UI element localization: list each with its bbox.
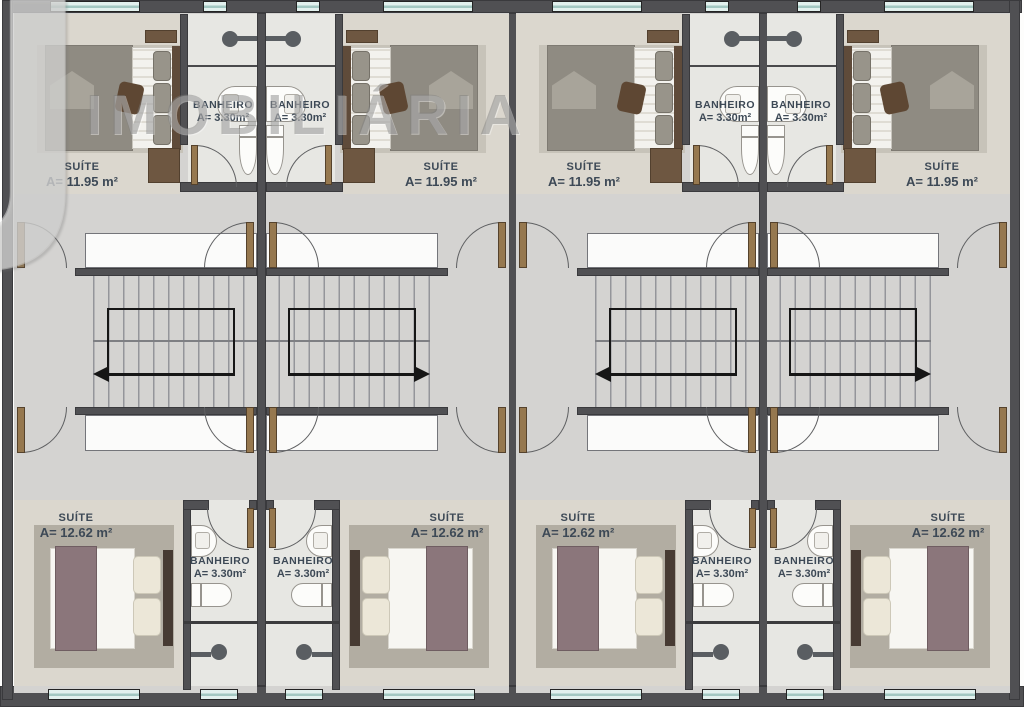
stair-arrow-line — [789, 373, 915, 376]
window-bottom-suite — [884, 689, 976, 700]
bed-top-pillow-2 — [853, 83, 871, 113]
bed-bottom-pillow-1 — [133, 556, 161, 594]
shower-head-top — [786, 31, 802, 47]
nightstand-top — [847, 30, 879, 43]
shower-bar-bottom — [312, 652, 332, 657]
hall-door-upper-left-leaf — [999, 222, 1007, 268]
hall-door-lower-left-arc — [456, 407, 502, 453]
window-top-suite — [552, 1, 642, 12]
shower-bar-top — [767, 36, 787, 41]
shower-divider-bottom — [266, 621, 340, 624]
window-bottom-suite — [550, 689, 642, 700]
dresser-top — [148, 148, 180, 183]
hall-wall-upper — [767, 268, 949, 276]
bathroom-bottom-door-leaf — [247, 508, 254, 548]
stair-arrow-head — [414, 366, 430, 382]
shower-line-top — [767, 65, 836, 67]
window-top-bathroom — [203, 1, 227, 12]
window-bottom-suite — [383, 689, 475, 700]
shower-head-bottom — [296, 644, 312, 660]
unit-1: SUÍTEA= 11.95 m²BANHEIROA= 3.30m²BANHEIR… — [14, 13, 257, 693]
hall-door-lower-left-leaf — [17, 407, 25, 453]
unit-3: SUÍTEA= 11.95 m²BANHEIROA= 3.30m²BANHEIR… — [516, 13, 759, 693]
bed-top-pillow-1 — [853, 51, 871, 81]
bathroom-bottom-wall-left — [332, 500, 340, 690]
toilet-top-tank — [767, 125, 785, 137]
toilet-bottom-tank — [823, 583, 833, 607]
bed-top-pillow-3 — [352, 115, 370, 145]
bed-top-pillow-1 — [655, 51, 673, 81]
bathroom-top-door-leaf — [325, 145, 332, 185]
bed-top-pillow-1 — [352, 51, 370, 81]
toilet-bottom-bowl — [703, 583, 734, 607]
hall-door-lower-right-leaf — [246, 407, 254, 453]
toilet-bottom-tank — [322, 583, 332, 607]
toilet-bottom-bowl — [201, 583, 232, 607]
sink-bottom — [697, 532, 712, 549]
bed-bottom-runner — [426, 546, 468, 651]
hall-door-lower-left-arc — [21, 407, 67, 453]
bed-bottom-runner — [55, 546, 97, 651]
stair-arrow-head — [595, 366, 611, 382]
unit-4: SUÍTEA= 11.95 m²BANHEIROA= 3.30m²BANHEIR… — [767, 13, 1010, 693]
window-bottom-bathroom — [702, 689, 740, 700]
bed-top-pillow-2 — [352, 83, 370, 113]
hall-door-upper-right-leaf — [748, 222, 756, 268]
shower-head-bottom — [211, 644, 227, 660]
bathroom-bottom-wall-top-a — [685, 500, 711, 510]
bathroom-bottom-wall-top-a — [314, 500, 340, 510]
window-top-suite — [383, 1, 473, 12]
toilet-top-tank — [741, 125, 759, 137]
shower-bar-bottom — [191, 652, 211, 657]
floor-plan: J IMOBILIÁRIA SUÍTEA= 11.95 m²BANHEIROA=… — [0, 0, 1024, 707]
hall-door-upper-left-leaf — [17, 222, 25, 268]
hall-door-lower-left-leaf — [999, 407, 1007, 453]
hall-door-upper-left-arc — [456, 222, 502, 268]
bathroom-top-door-leaf — [693, 145, 700, 185]
hall-door-upper-right-leaf — [246, 222, 254, 268]
shower-line-top — [266, 65, 335, 67]
stair-arrow-head — [915, 366, 931, 382]
hall-door-lower-right-leaf — [748, 407, 756, 453]
shower-head-top — [724, 31, 740, 47]
bed-top-pillow-2 — [655, 83, 673, 113]
bathroom-bottom-wall-left — [833, 500, 841, 690]
window-top-bathroom — [797, 1, 821, 12]
exterior-wall-right — [1009, 0, 1020, 700]
bed-bottom-pillow-1 — [863, 556, 891, 594]
hall-door-lower-left-leaf — [519, 407, 527, 453]
window-top-suite — [50, 1, 140, 12]
shower-bar-bottom — [813, 652, 833, 657]
window-top-suite — [884, 1, 974, 12]
dresser-top — [844, 148, 876, 183]
toilet-bottom-bowl — [792, 583, 823, 607]
toilet-bottom-tank — [693, 583, 703, 607]
hall-door-upper-left-arc — [957, 222, 1003, 268]
bathroom-bottom-wall-top-a — [183, 500, 209, 510]
shower-bar-top — [266, 36, 286, 41]
bed-bottom-pillow-2 — [635, 598, 663, 636]
shower-head-bottom — [797, 644, 813, 660]
hall-door-lower-right-leaf — [269, 407, 277, 453]
toilet-top-tank — [239, 125, 257, 137]
stair-arrow-line — [611, 373, 737, 376]
bathroom-top-wall-left — [335, 14, 343, 145]
bathroom-top-wall-left — [682, 14, 690, 145]
window-bottom-bathroom — [285, 689, 323, 700]
bathroom-top-door-leaf — [826, 145, 833, 185]
dresser-top — [343, 148, 375, 183]
bed-top-pillow-2 — [153, 83, 171, 113]
nightstand-top — [346, 30, 378, 43]
bed-top-pillow-3 — [853, 115, 871, 145]
bathroom-bottom-wall-left — [183, 500, 191, 690]
bathroom-bottom-door-leaf — [269, 508, 276, 548]
sink-bottom — [313, 532, 328, 549]
bed-bottom-headboard — [665, 550, 675, 646]
bathroom-bottom-wall-top-a — [815, 500, 841, 510]
shower-bar-top — [237, 36, 257, 41]
hall-door-upper-right-arc — [706, 222, 752, 268]
bathroom-top-door-leaf — [191, 145, 198, 185]
window-top-bathroom — [296, 1, 320, 12]
sink-bottom — [195, 532, 210, 549]
nightstand-top — [145, 30, 177, 43]
shower-line-top — [690, 65, 759, 67]
bed-bottom-headboard — [163, 550, 173, 646]
bathroom-bottom-wall-left — [685, 500, 693, 690]
exterior-wall-left — [2, 0, 13, 700]
stair-rail — [107, 308, 235, 376]
bed-bottom-runner — [927, 546, 969, 651]
bed-bottom-runner — [557, 546, 599, 651]
bed-top-pillow-1 — [153, 51, 171, 81]
bed-bottom-pillow-1 — [635, 556, 663, 594]
exterior-wall-top — [2, 0, 1022, 13]
bed-bottom-headboard — [350, 550, 360, 646]
bathroom-bottom-door-leaf — [770, 508, 777, 548]
bed-bottom-headboard — [851, 550, 861, 646]
hall-door-upper-right-leaf — [269, 222, 277, 268]
hall-door-upper-left-arc — [21, 222, 67, 268]
toilet-top-tank — [266, 125, 284, 137]
bathroom-top-wall-left — [836, 14, 844, 145]
window-top-bathroom — [705, 1, 729, 12]
bed-bottom-pillow-2 — [133, 598, 161, 636]
hall-door-upper-left-arc — [523, 222, 569, 268]
hall-door-upper-right-arc — [774, 222, 820, 268]
bed-top-headboard — [342, 46, 351, 150]
stair-rail — [288, 308, 416, 376]
unit-2: SUÍTEA= 11.95 m²BANHEIROA= 3.30m²BANHEIR… — [266, 13, 509, 693]
hall-wall-upper — [577, 268, 759, 276]
hall-door-lower-left-arc — [523, 407, 569, 453]
shower-divider-bottom — [767, 621, 841, 624]
shower-head-top — [222, 31, 238, 47]
bed-top-pillow-3 — [655, 115, 673, 145]
bed-bottom-pillow-2 — [863, 598, 891, 636]
hall-wall-upper — [75, 268, 257, 276]
bed-top-headboard — [843, 46, 852, 150]
shower-head-top — [285, 31, 301, 47]
sink-top — [785, 94, 801, 114]
sink-top — [223, 94, 239, 114]
stair-arrow-line — [109, 373, 235, 376]
sink-top — [284, 94, 300, 114]
toilet-bottom-bowl — [291, 583, 322, 607]
stair-arrow-line — [288, 373, 414, 376]
bathroom-top-wall-left — [180, 14, 188, 145]
hall-door-lower-left-arc — [957, 407, 1003, 453]
party-wall-1 — [257, 13, 266, 686]
bed-top-pillow-3 — [153, 115, 171, 145]
nightstand-top — [647, 30, 679, 43]
hall-door-upper-right-leaf — [770, 222, 778, 268]
hall-door-lower-left-leaf — [498, 407, 506, 453]
sink-top — [725, 94, 741, 114]
toilet-bottom-tank — [191, 583, 201, 607]
stair-rail — [609, 308, 737, 376]
shower-divider-bottom — [685, 621, 759, 624]
hall-door-upper-left-leaf — [519, 222, 527, 268]
sink-bottom — [814, 532, 829, 549]
shower-divider-bottom — [183, 621, 257, 624]
hall-door-upper-right-arc — [204, 222, 250, 268]
window-bottom-suite — [48, 689, 140, 700]
shower-head-bottom — [713, 644, 729, 660]
shower-bar-bottom — [693, 652, 713, 657]
bathroom-bottom-door-leaf — [749, 508, 756, 548]
stair-rail — [789, 308, 917, 376]
shower-bar-top — [739, 36, 759, 41]
window-bottom-bathroom — [786, 689, 824, 700]
hall-door-upper-left-leaf — [498, 222, 506, 268]
window-bottom-bathroom — [200, 689, 238, 700]
hall-wall-upper — [266, 268, 448, 276]
bed-bottom-pillow-1 — [362, 556, 390, 594]
dresser-top — [650, 148, 682, 183]
hall-door-lower-right-leaf — [770, 407, 778, 453]
stair-arrow-head — [93, 366, 109, 382]
shower-line-top — [188, 65, 257, 67]
bed-bottom-pillow-2 — [362, 598, 390, 636]
hall-door-upper-right-arc — [273, 222, 319, 268]
